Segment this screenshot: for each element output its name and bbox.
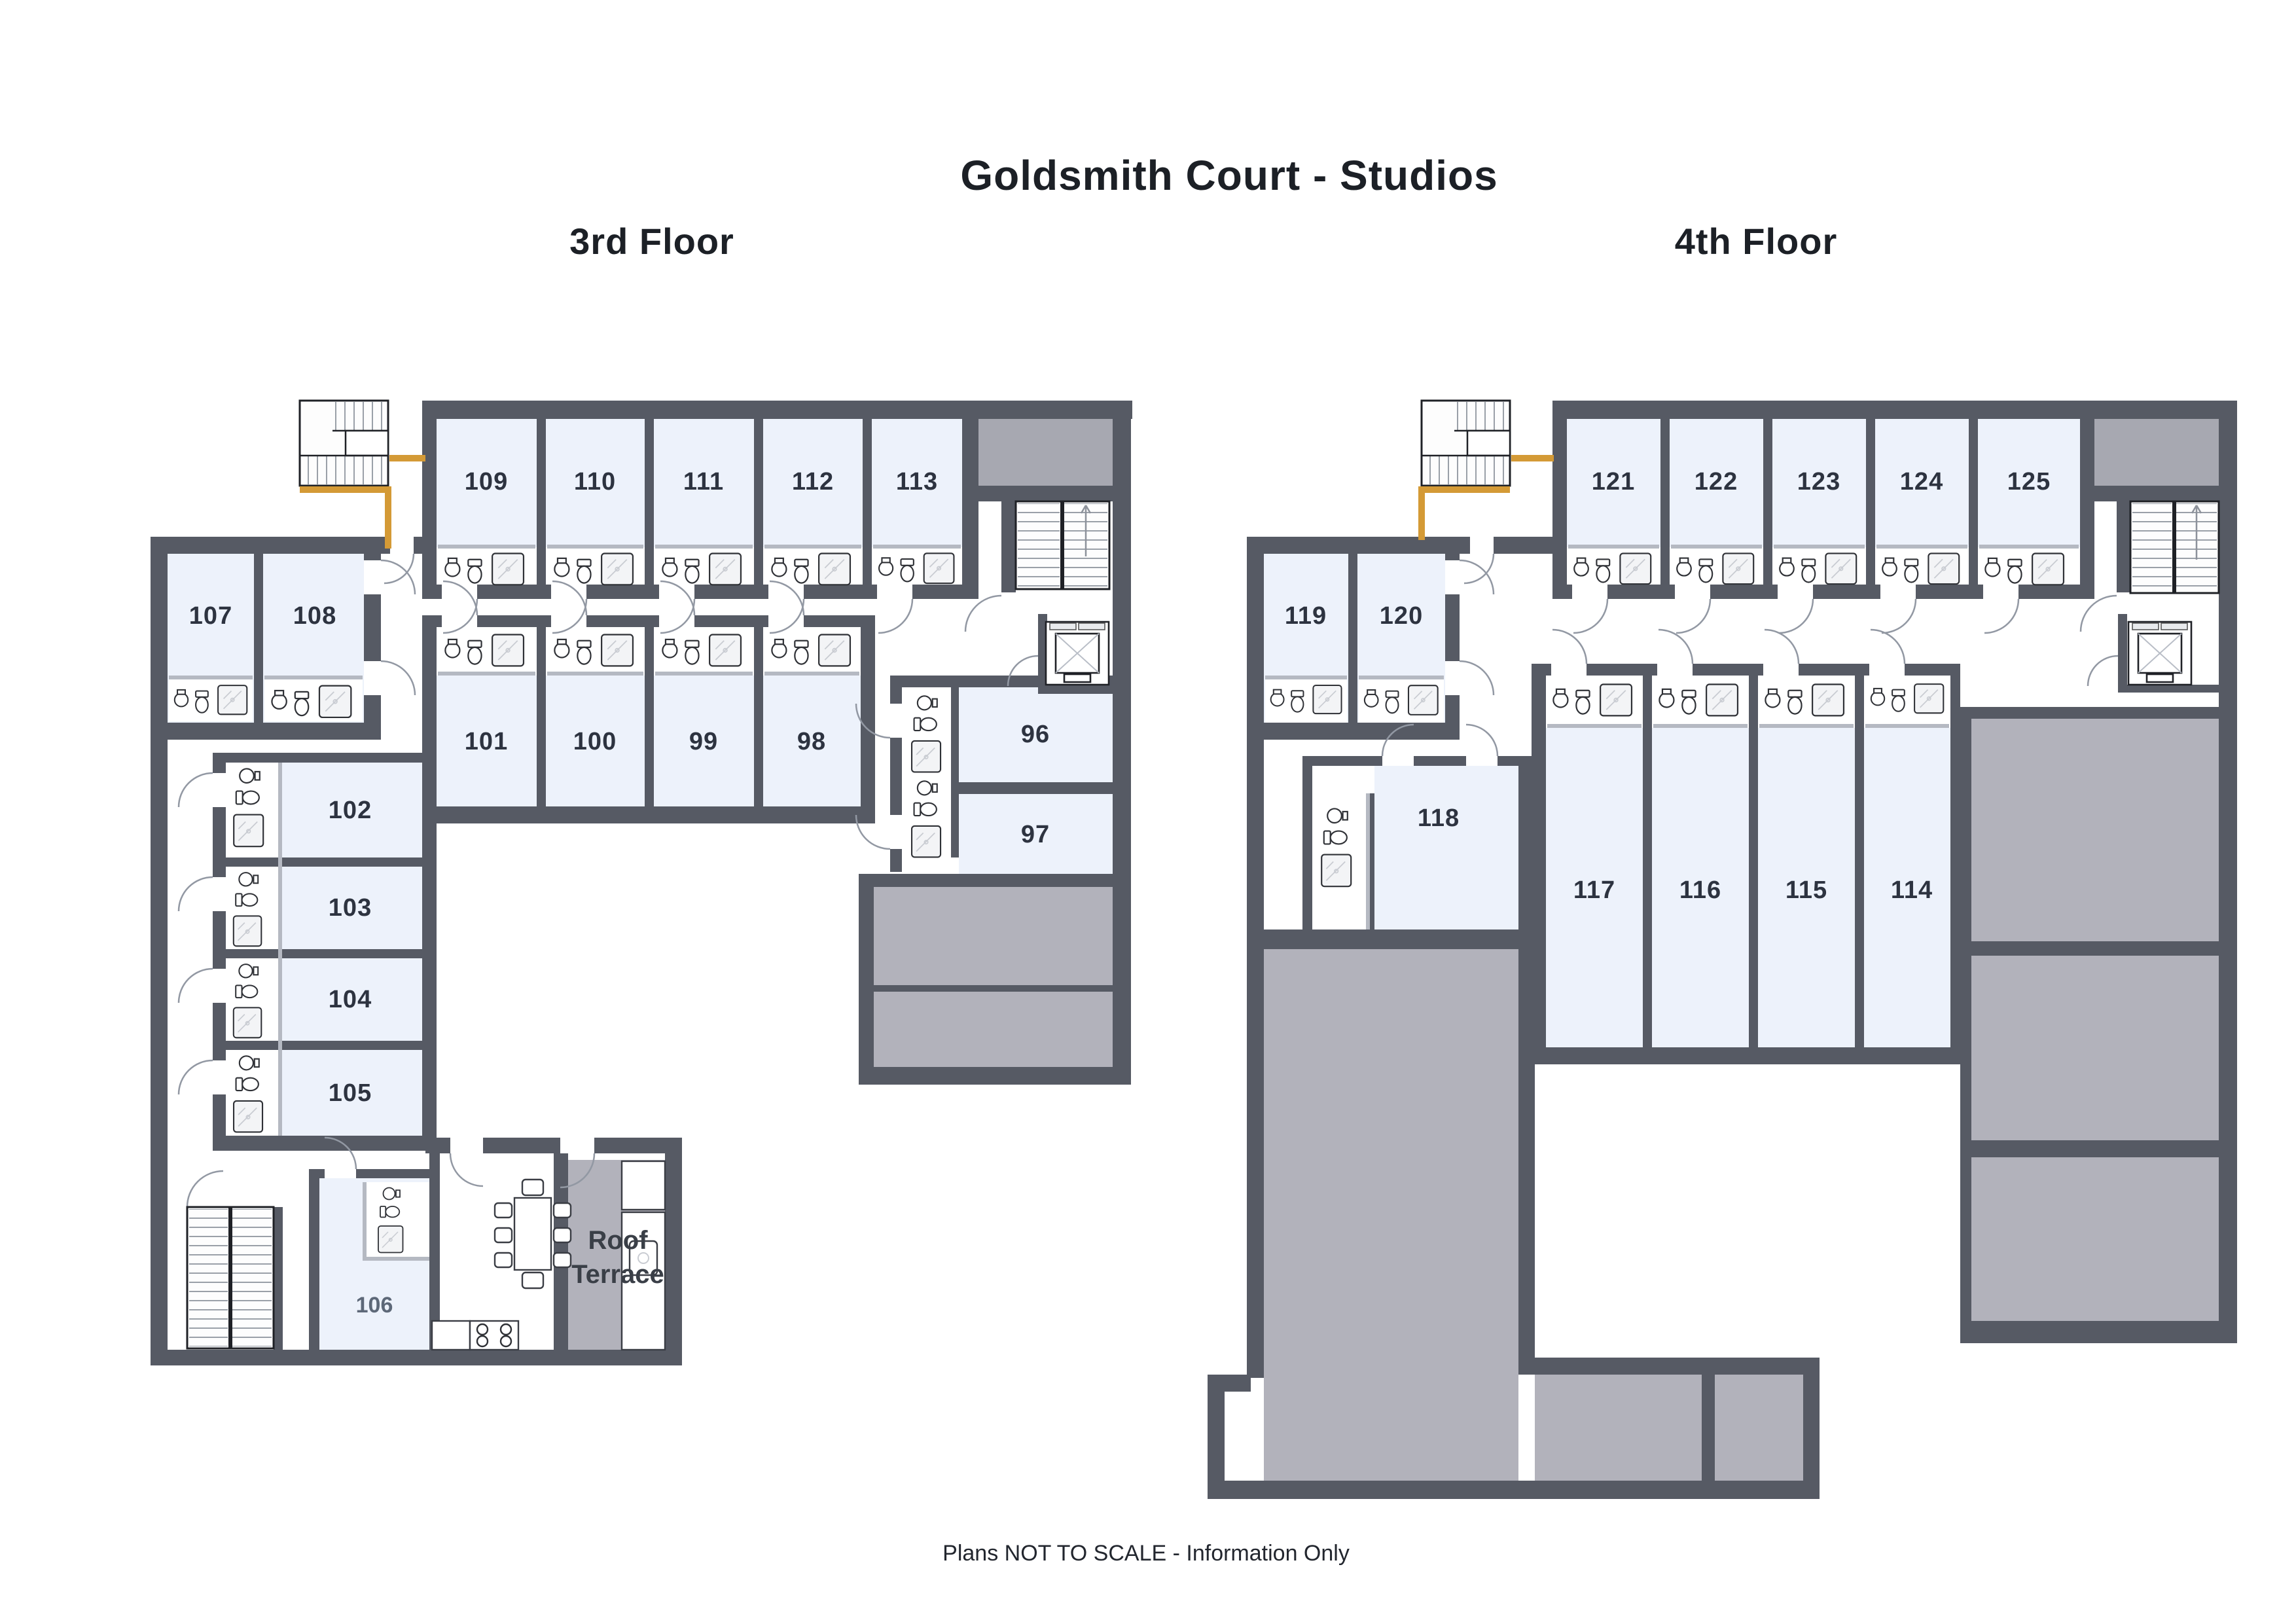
roof-area <box>1535 1375 1702 1481</box>
room-label-101: 101 <box>465 728 508 755</box>
room-label-96: 96 <box>1021 721 1050 748</box>
room-label-117: 117 <box>1573 876 1615 904</box>
floor-4-plan: 121 122 123 124 125 119 120 117 116 115 … <box>1208 401 2237 1499</box>
room-label-102: 102 <box>329 797 372 824</box>
roof-terrace-label: Terrace <box>571 1260 664 1289</box>
floor-3-plan: 109 110 111 112 113 107 108 101 100 99 9… <box>151 401 1132 1365</box>
staircase <box>187 1207 274 1348</box>
roof-void-block <box>2094 419 2219 486</box>
room-label-112: 112 <box>792 468 834 496</box>
roof-area <box>874 992 1113 1067</box>
roof-terrace-label: Roof <box>588 1226 648 1255</box>
room-label-107: 107 <box>189 602 232 630</box>
room-label-121: 121 <box>1592 468 1635 496</box>
room-label-114: 114 <box>1891 876 1933 904</box>
room-label-125: 125 <box>2007 468 2051 496</box>
roof-area <box>874 884 1113 985</box>
room-label-97: 97 <box>1021 821 1050 848</box>
room-label-123: 123 <box>1797 468 1840 496</box>
roof-void-block <box>978 419 1113 486</box>
room-label-98: 98 <box>797 728 826 755</box>
roof-area <box>1971 1157 2219 1321</box>
room-label-100: 100 <box>573 728 617 755</box>
room-label-120: 120 <box>1380 602 1423 630</box>
room-label-99: 99 <box>689 728 718 755</box>
floor-plan-drawing: Goldsmith Court - Studios 3rd Floor 4th … <box>0 0 2296 1624</box>
room-label-116: 116 <box>1679 876 1721 904</box>
roof-area <box>1264 949 1518 1481</box>
roof-area <box>1971 956 2219 1140</box>
room-label-103: 103 <box>329 894 372 922</box>
roof-area <box>1715 1375 1803 1481</box>
roof-area <box>1971 719 2219 941</box>
room-118 <box>1374 766 1518 929</box>
room-label-118: 118 <box>1418 804 1460 832</box>
room-label-110: 110 <box>574 468 616 496</box>
room-label-105: 105 <box>329 1079 372 1107</box>
staircase <box>2130 501 2219 593</box>
room-label-111: 111 <box>683 468 724 496</box>
room-label-113: 113 <box>896 468 938 496</box>
room-label-115: 115 <box>1785 876 1827 904</box>
floor-plan-sheet: Goldsmith Court - Studios 3rd Floor 4th … <box>0 0 2296 1624</box>
room-label-119: 119 <box>1285 602 1327 630</box>
disclaimer-text: Plans NOT TO SCALE - Information Only <box>942 1541 1350 1566</box>
stove-icon <box>470 1321 518 1350</box>
floor-3-title: 3rd Floor <box>569 221 734 262</box>
floor-4-title: 4th Floor <box>1675 221 1838 262</box>
room-label-106: 106 <box>356 1293 393 1318</box>
room-label-109: 109 <box>465 468 508 496</box>
room-label-124: 124 <box>1900 468 1943 496</box>
room-label-104: 104 <box>329 986 372 1013</box>
staircase <box>1016 501 1109 589</box>
room-label-108: 108 <box>293 602 336 630</box>
page-title: Goldsmith Court - Studios <box>960 152 1498 199</box>
room-label-122: 122 <box>1695 468 1738 496</box>
